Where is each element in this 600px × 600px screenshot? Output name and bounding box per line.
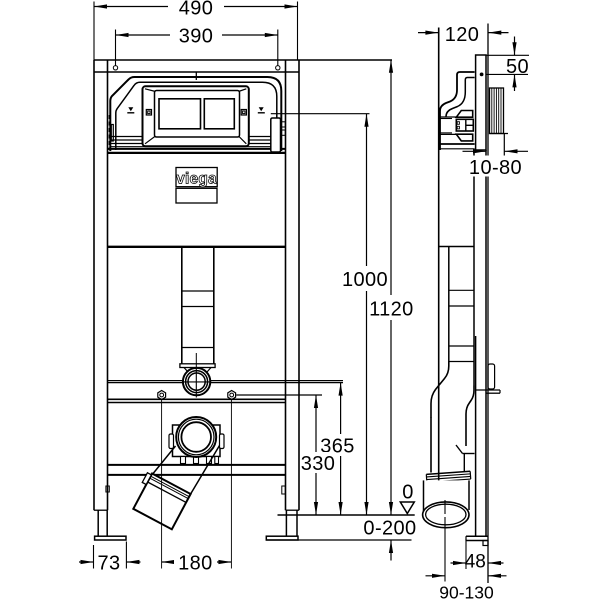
svg-text:1000: 1000 [342, 269, 388, 291]
svg-text:330: 330 [301, 453, 336, 475]
svg-text:490: 490 [179, 0, 214, 20]
svg-text:0-200: 0-200 [363, 517, 416, 539]
svg-text:180: 180 [178, 553, 213, 575]
svg-text:390: 390 [179, 26, 214, 48]
svg-text:10-80: 10-80 [469, 157, 522, 179]
svg-text:48: 48 [465, 551, 486, 572]
svg-text:73: 73 [97, 553, 120, 575]
svg-text:0: 0 [402, 482, 414, 504]
svg-text:50: 50 [506, 56, 529, 78]
svg-text:90-130: 90-130 [439, 582, 494, 600]
svg-text:1120: 1120 [369, 298, 414, 320]
svg-text:viega: viega [176, 171, 217, 188]
svg-text:120: 120 [445, 24, 480, 46]
